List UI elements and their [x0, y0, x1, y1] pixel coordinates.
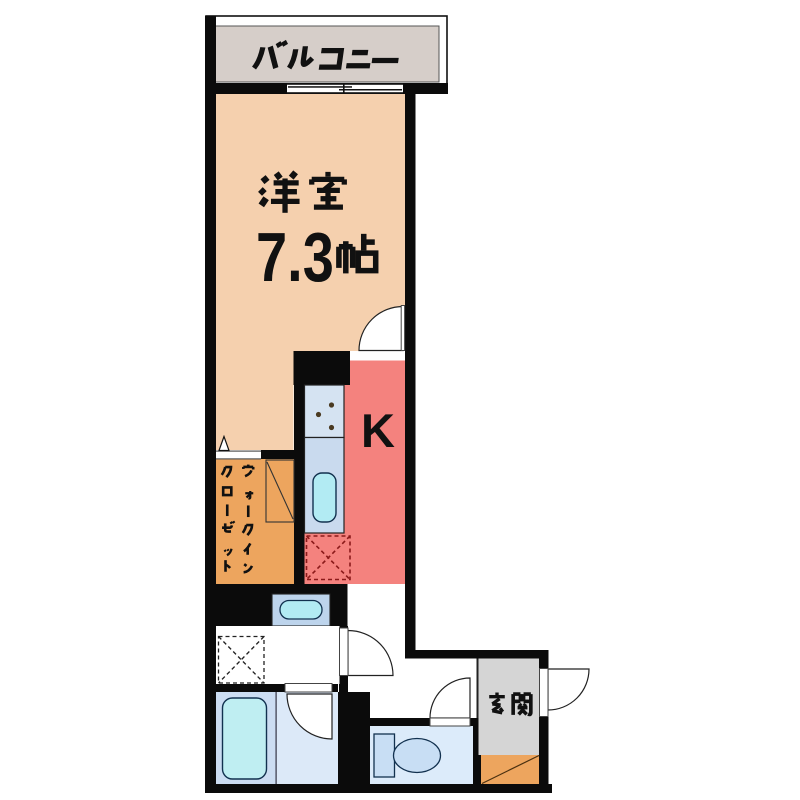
svg-text:K: K — [361, 404, 395, 457]
svg-text:7.3: 7.3 — [256, 219, 334, 296]
